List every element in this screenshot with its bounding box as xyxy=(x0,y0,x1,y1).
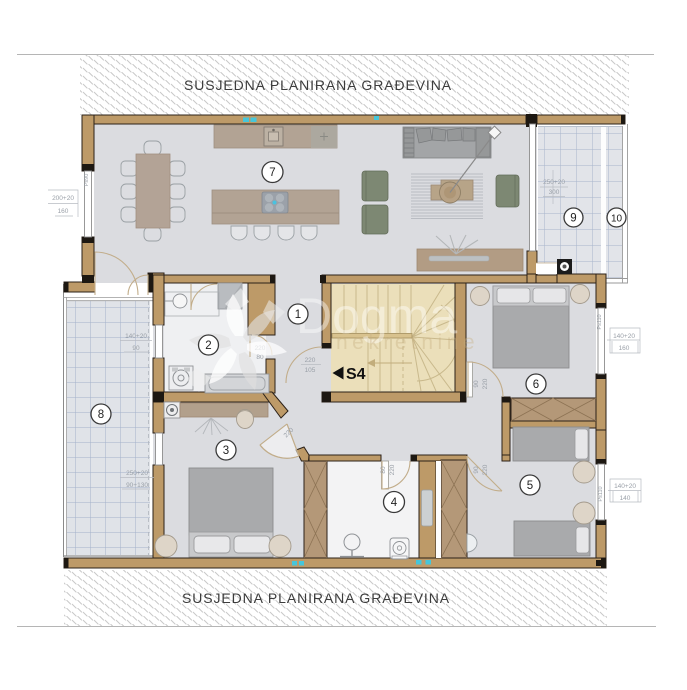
svg-text:90: 90 xyxy=(473,380,480,388)
svg-text:Ps110: Ps110 xyxy=(598,486,604,501)
svg-text:SUSJEDNA PLANIRANA GRAĐEVINA: SUSJEDNA PLANIRANA GRAĐEVINA xyxy=(184,77,452,93)
svg-text:10: 10 xyxy=(611,214,623,225)
svg-text:220: 220 xyxy=(305,357,316,364)
svg-text:1: 1 xyxy=(295,309,301,321)
svg-text:5: 5 xyxy=(527,480,533,492)
svg-text:160: 160 xyxy=(619,345,630,352)
svg-text:220: 220 xyxy=(482,464,489,475)
svg-text:Ps90: Ps90 xyxy=(84,174,90,187)
svg-text:140+20: 140+20 xyxy=(614,483,636,490)
svg-text:9: 9 xyxy=(570,213,576,225)
svg-text:160: 160 xyxy=(58,208,69,215)
svg-text:300: 300 xyxy=(549,189,560,196)
svg-text:8: 8 xyxy=(98,409,104,421)
svg-text:S4: S4 xyxy=(346,366,366,383)
svg-text:3: 3 xyxy=(223,445,229,457)
svg-text:220: 220 xyxy=(389,464,396,475)
svg-text:4: 4 xyxy=(391,497,398,509)
svg-text:SUSJEDNA PLANIRANA GRAĐEVINA: SUSJEDNA PLANIRANA GRAĐEVINA xyxy=(182,590,450,606)
svg-text:200+20: 200+20 xyxy=(52,195,74,202)
svg-text:105: 105 xyxy=(305,367,316,374)
svg-text:250+20: 250+20 xyxy=(543,179,565,186)
svg-text:7: 7 xyxy=(269,167,275,179)
svg-text:90: 90 xyxy=(132,345,140,352)
svg-text:nekretnine: nekretnine xyxy=(336,331,479,354)
svg-text:250+20: 250+20 xyxy=(126,470,148,477)
svg-text:80: 80 xyxy=(380,466,387,474)
svg-text:90: 90 xyxy=(473,466,480,474)
svg-text:2: 2 xyxy=(205,340,211,352)
svg-text:140+20: 140+20 xyxy=(125,333,147,340)
svg-text:220: 220 xyxy=(482,378,489,389)
svg-text:6: 6 xyxy=(533,379,539,391)
svg-text:140: 140 xyxy=(620,495,631,502)
svg-text:90+130: 90+130 xyxy=(126,482,148,489)
svg-text:140+20: 140+20 xyxy=(613,333,635,340)
svg-text:Ps110: Ps110 xyxy=(597,314,603,329)
